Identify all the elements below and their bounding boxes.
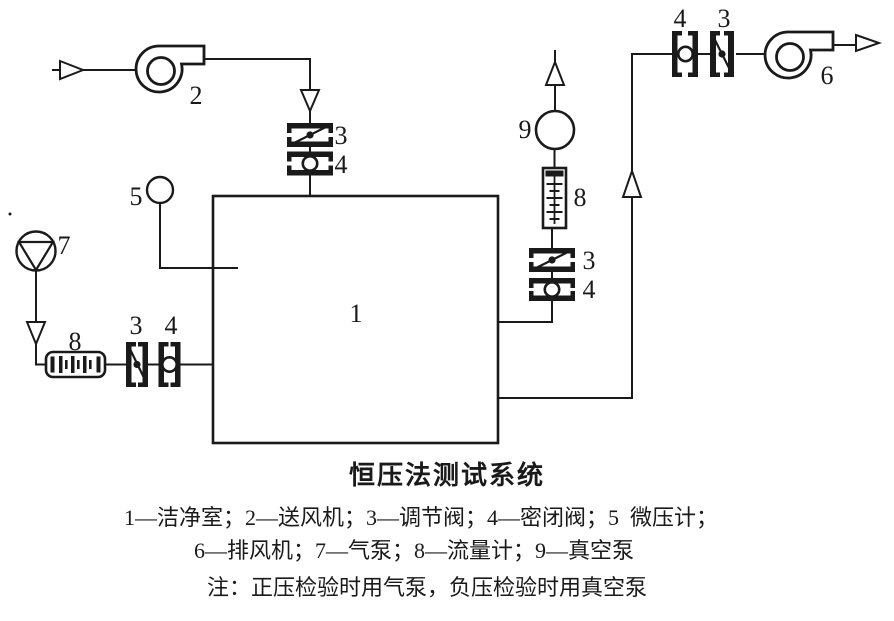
up-arrow-riser-icon (623, 171, 641, 197)
outlet-arrow-icon (856, 35, 879, 51)
label-valve3-topright: 3 (718, 4, 731, 33)
pipe-box-to-rightvalves (498, 301, 552, 322)
pipe-manometer-tube (160, 203, 238, 268)
label-valve4-left: 4 (165, 311, 178, 340)
sealing-valve-topright-icon (672, 31, 698, 77)
regulating-valve-top-icon (287, 123, 333, 147)
label-supply-fan: 2 (190, 81, 203, 110)
label-flowmeter-right: 8 (574, 183, 587, 212)
air-pump-icon (17, 232, 56, 271)
legend-note: 注：正压检验时用气泵，负压检验时用真空泵 (0, 570, 874, 602)
label-air-pump: 7 (58, 231, 71, 260)
pipe-exhaust-riser (498, 54, 672, 398)
label-exhaust-fan: 6 (821, 61, 834, 90)
diagram-page: 1 2 3 4 5 7 8 3 4 9 8 3 4 4 3 6 恒压法测试系统 … (0, 0, 894, 621)
label-valve4-top: 4 (335, 150, 348, 179)
up-arrow-vent-icon (546, 62, 564, 85)
down-arrow-top-icon (301, 90, 319, 111)
label-valve4-right: 4 (583, 275, 596, 304)
diagram-caption: 恒压法测试系统 (0, 455, 894, 492)
legend-line-2: 6—排风机；7—气泵；8—流量计；9—真空泵 (0, 533, 861, 565)
sealing-valve-left-icon (159, 342, 181, 387)
regulating-valve-topright-icon (710, 31, 734, 77)
label-valve3-top: 3 (335, 121, 348, 150)
label-valve3-right: 3 (583, 246, 596, 275)
label-cleanroom: 1 (350, 299, 363, 328)
stray-mark (9, 213, 12, 216)
inlet-arrow-icon (60, 61, 83, 79)
pipe-airpump-down (36, 270, 46, 365)
label-valve4-topright: 4 (674, 4, 687, 33)
label-vacuum-pump: 9 (519, 115, 532, 144)
label-valve3-left: 3 (130, 311, 143, 340)
down-arrow-left-icon (27, 322, 45, 344)
flow-meter-right-icon (543, 168, 566, 228)
pipe-supply-duct (203, 59, 310, 124)
sealing-valve-top-icon (287, 152, 333, 176)
regulating-valve-left-icon (126, 342, 148, 387)
vacuum-pump-icon (536, 111, 574, 149)
legend-line-1: 1—洁净室；2—送风机；3—调节阀；4—密闭阀；5 微压计； (0, 500, 868, 532)
label-flowmeter-left: 8 (69, 327, 82, 356)
schematic-svg: 1 2 3 4 5 7 8 3 4 9 8 3 4 4 3 6 (0, 0, 894, 450)
sealing-valve-right-icon (529, 278, 575, 301)
regulating-valve-right-icon (529, 248, 575, 272)
label-manometer: 5 (130, 182, 143, 211)
micro-manometer-icon (147, 177, 173, 203)
